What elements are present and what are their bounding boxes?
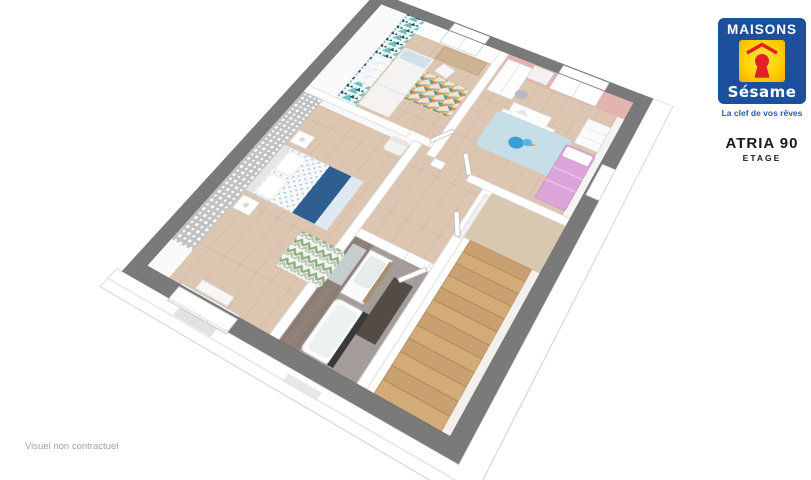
keyhole-icon bbox=[739, 40, 785, 82]
plan-title: ATRIA 90 bbox=[712, 135, 811, 152]
maisons-sesame-logo: MAISONS Sésame bbox=[718, 18, 806, 104]
brand-name-bottom: Sésame bbox=[728, 85, 797, 100]
disclaimer-text: Visuel non contractuel bbox=[25, 441, 118, 452]
floorplan-3d bbox=[122, 0, 654, 464]
plan-subtitle: ETAGE bbox=[712, 153, 811, 163]
brand-tagline: La clef de vos rêves bbox=[712, 108, 811, 118]
landing-door bbox=[454, 212, 460, 236]
brand-block: MAISONS Sésame La clef de vos rêves ATRI… bbox=[712, 18, 811, 163]
brand-name-top: MAISONS bbox=[727, 23, 797, 37]
page: MAISONS Sésame La clef de vos rêves ATRI… bbox=[0, 0, 811, 480]
